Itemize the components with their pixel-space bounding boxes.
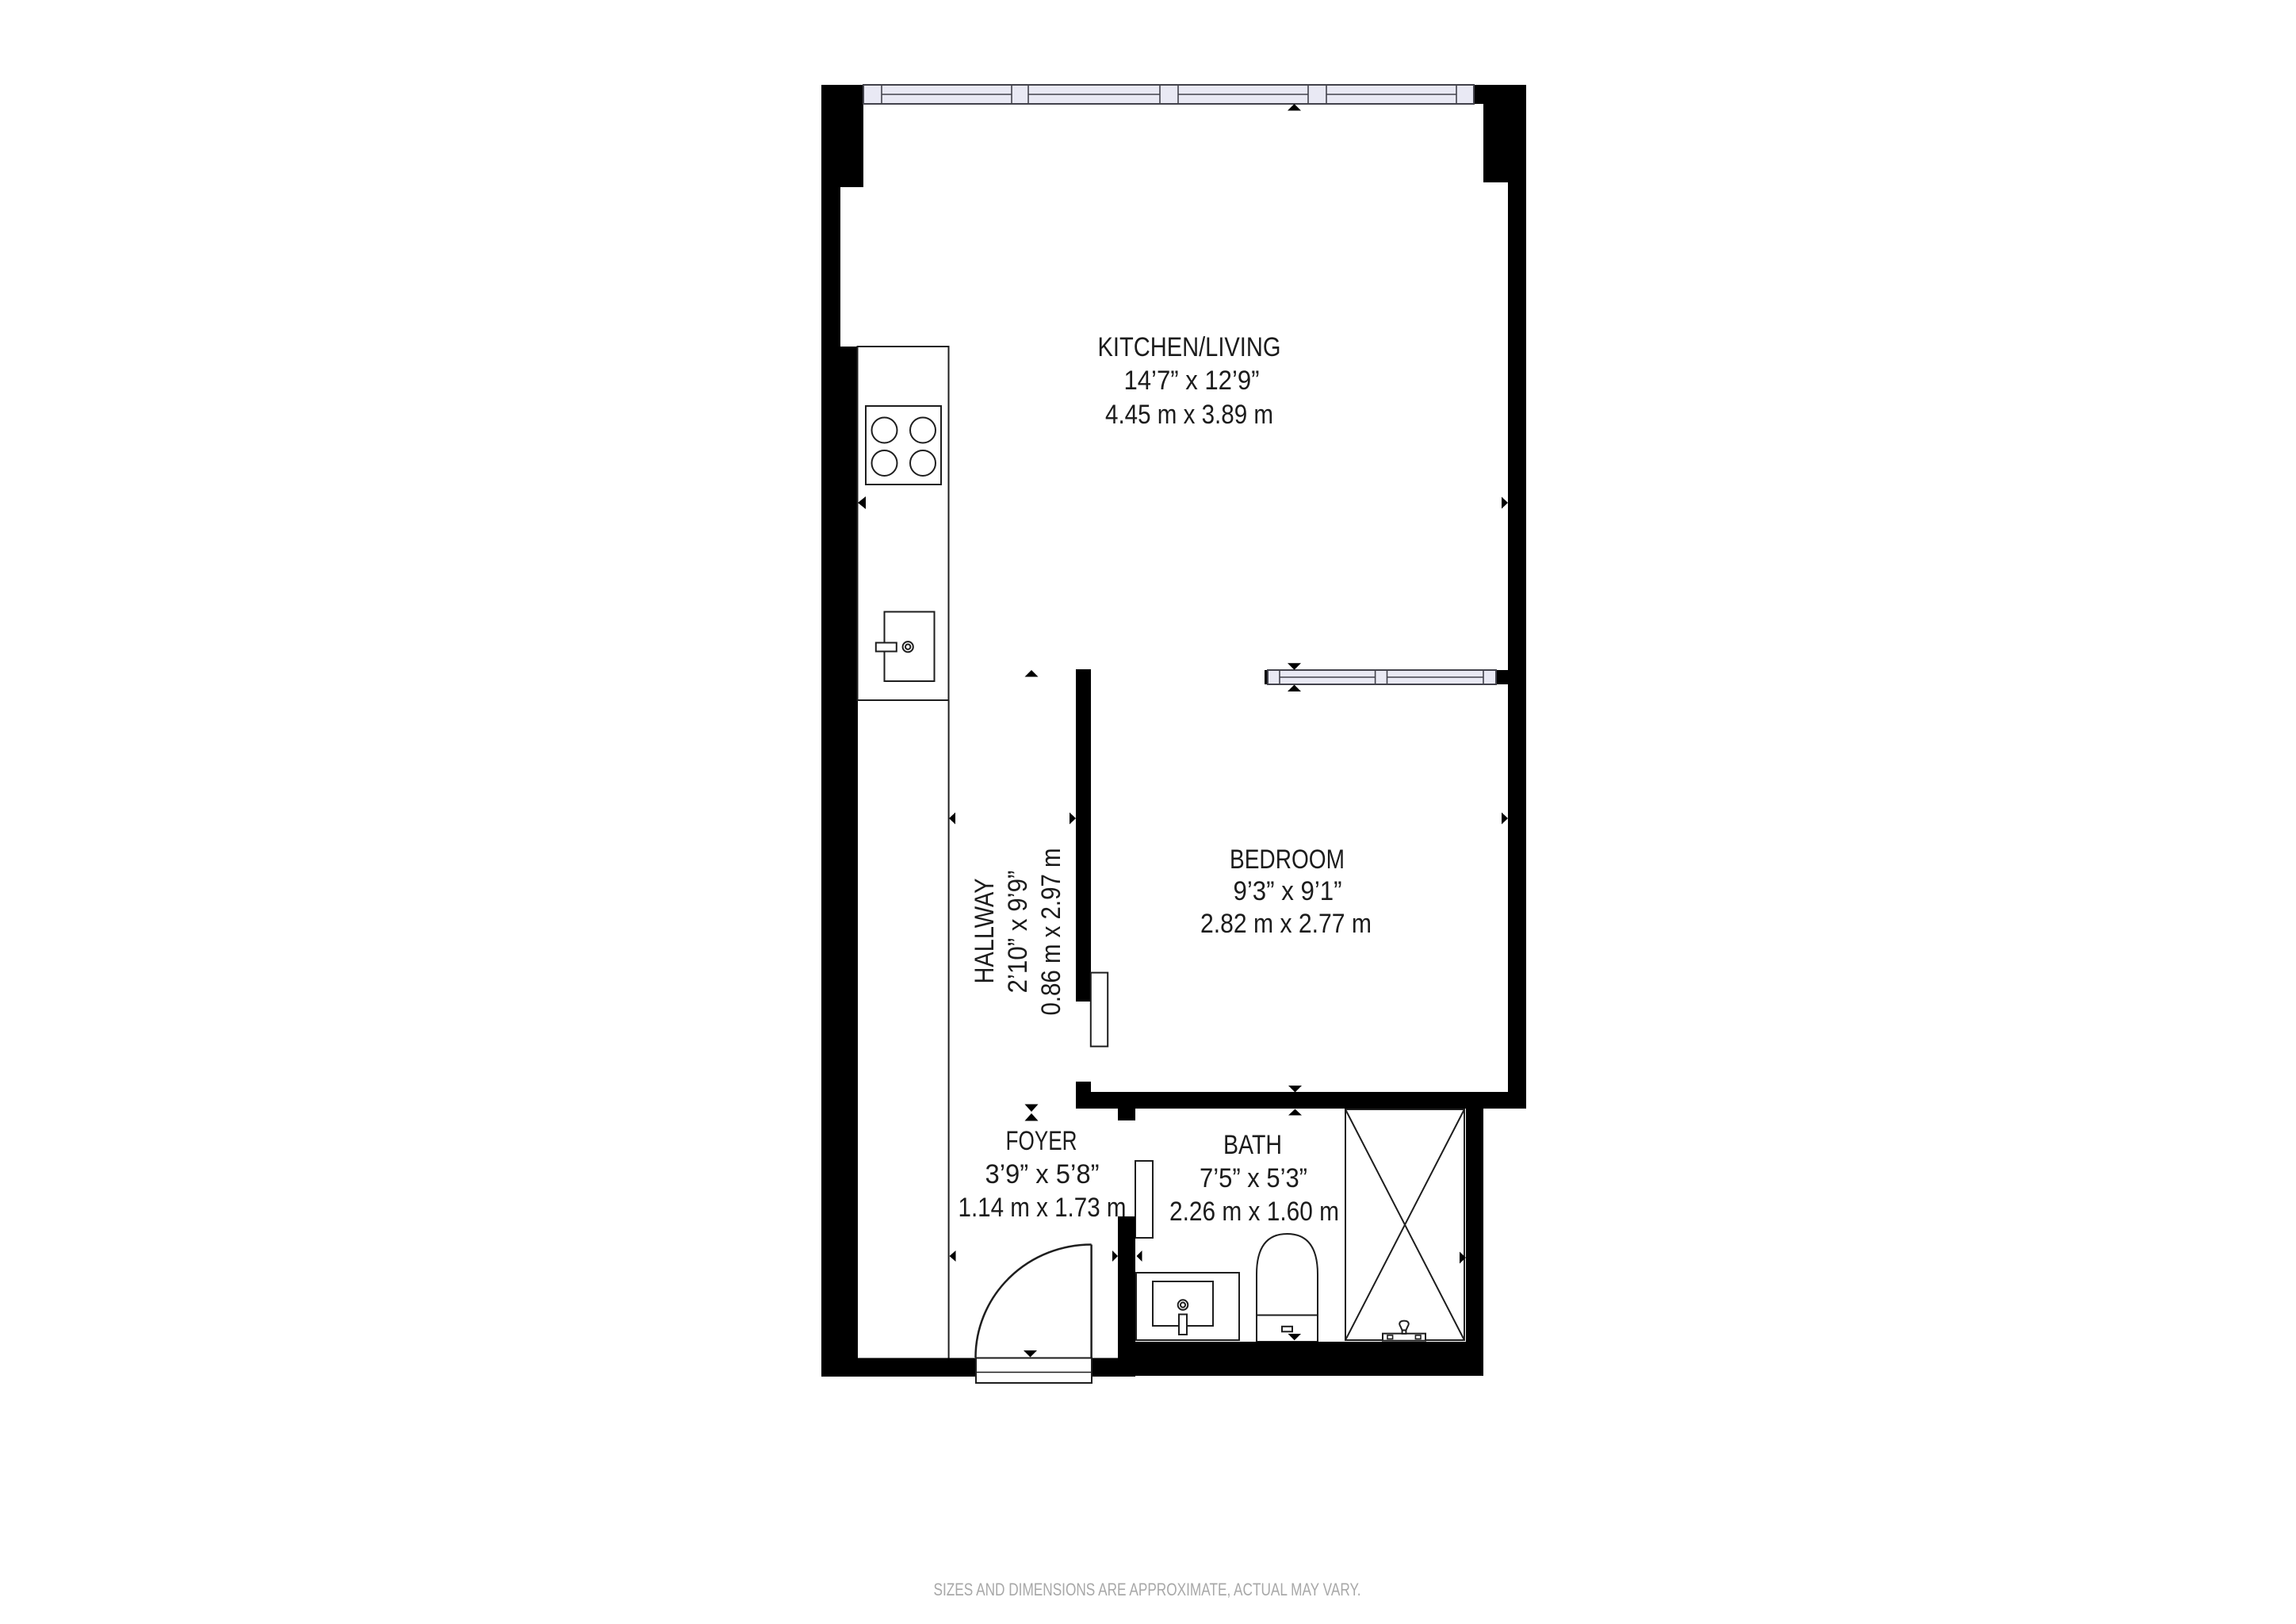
svg-text:BATH: BATH [1223,1130,1282,1160]
svg-text:BEDROOM: BEDROOM [1230,845,1345,875]
svg-text:7’5” x 5’3”: 7’5” x 5’3” [1200,1163,1307,1193]
svg-text:2.26 m x 1.60 m: 2.26 m x 1.60 m [1169,1197,1339,1227]
svg-text:KITCHEN/LIVING: KITCHEN/LIVING [1098,332,1281,362]
svg-text:4.45 m x 3.89 m: 4.45 m x 3.89 m [1105,400,1273,430]
svg-text:FOYER: FOYER [1006,1126,1077,1156]
svg-text:2’10” x 9’9”: 2’10” x 9’9” [1003,871,1033,994]
svg-text:3’9” x 5’8”: 3’9” x 5’8” [985,1159,1100,1189]
svg-text:1.14 m x 1.73 m: 1.14 m x 1.73 m [959,1193,1127,1223]
svg-text:0.86 m x 2.97 m: 0.86 m x 2.97 m [1036,848,1066,1016]
svg-text:14’7” x 12’9”: 14’7” x 12’9” [1124,366,1260,396]
svg-text:HALLWAY: HALLWAY [970,879,1000,984]
svg-text:SIZES AND DIMENSIONS ARE APPRO: SIZES AND DIMENSIONS ARE APPROXIMATE, AC… [934,1580,1361,1599]
svg-text:2.82 m x 2.77 m: 2.82 m x 2.77 m [1200,909,1372,939]
svg-text:9’3” x 9’1”: 9’3” x 9’1” [1234,876,1342,906]
